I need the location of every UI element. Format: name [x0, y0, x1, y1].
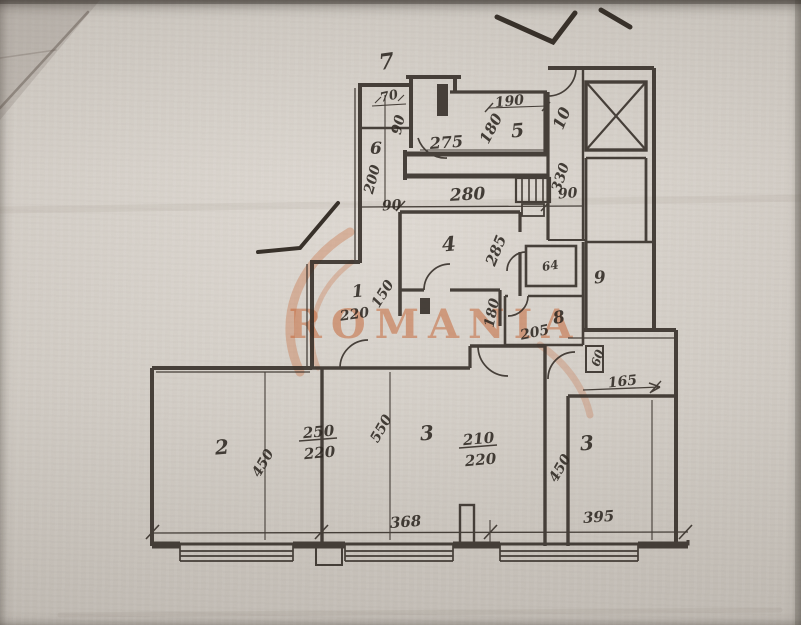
room-label-1: 1 [351, 281, 365, 302]
fraction-210: 210 [461, 428, 495, 449]
dim-395: 395 [582, 507, 614, 527]
room-label-4: 4 [441, 231, 457, 256]
room-label-2: 2 [213, 434, 230, 459]
fraction-220-left: 220 [302, 442, 336, 463]
dim-165: 165 [607, 372, 638, 391]
fraction-220-mid: 220 [463, 449, 497, 470]
scanned-floor-plan-page: ROMANIA [0, 0, 801, 625]
room-label-3-right: 3 [579, 430, 595, 455]
room-label-6: 6 [370, 139, 382, 159]
dim-90-right: 90 [557, 185, 578, 203]
dim-90-bottomleft: 90 [381, 197, 402, 215]
dim-368: 368 [389, 512, 422, 532]
wc-dim-64: 64 [541, 257, 560, 274]
room-label-5: 5 [510, 119, 525, 142]
duct-room7 [437, 84, 448, 116]
wall-stub [420, 298, 430, 314]
room-label-3-mid: 3 [419, 420, 435, 445]
dim-275: 275 [428, 132, 464, 153]
dim-280: 280 [448, 184, 486, 206]
dim-190: 190 [494, 92, 525, 111]
room-label-9: 9 [593, 268, 607, 289]
floor-plan-svg: ROMANIA [0, 0, 801, 625]
fraction-250: 250 [301, 421, 335, 442]
